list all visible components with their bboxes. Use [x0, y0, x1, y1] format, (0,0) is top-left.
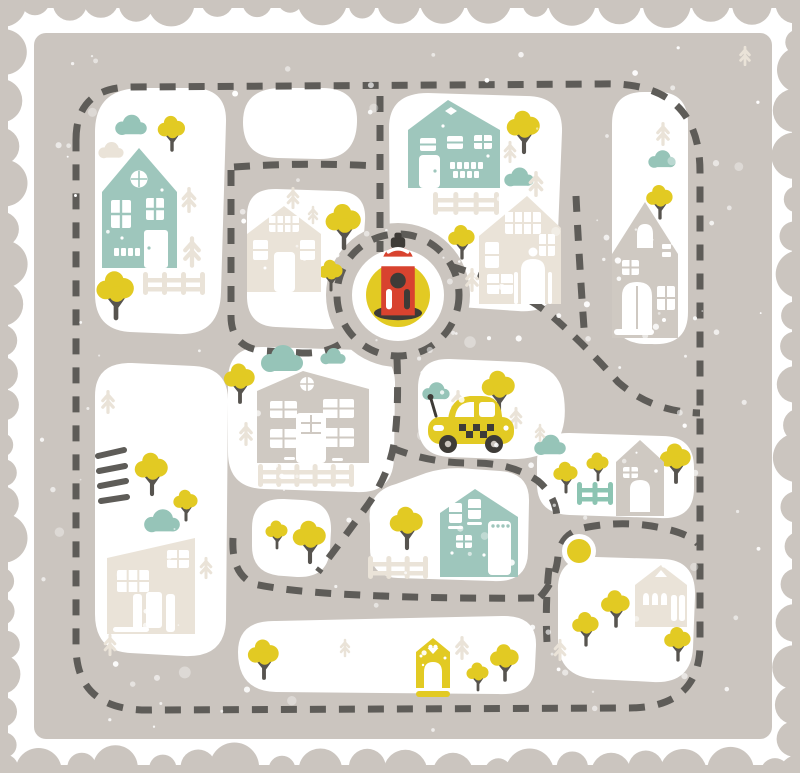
speckle — [681, 673, 687, 679]
speckle — [277, 413, 280, 416]
border-scallop — [779, 755, 800, 773]
speckle — [593, 666, 596, 669]
speckle — [713, 160, 719, 166]
speckle — [661, 562, 666, 567]
border-scallop — [643, 0, 691, 28]
speckle — [464, 336, 476, 348]
border-scallop — [598, 0, 642, 24]
border-scallop — [772, 645, 800, 689]
speckle — [683, 424, 687, 428]
speckle — [198, 349, 201, 352]
speckle — [615, 257, 621, 263]
speckle — [143, 623, 148, 628]
speckle — [637, 562, 641, 566]
speckle — [499, 284, 505, 290]
speckle — [481, 532, 489, 540]
speckle — [658, 312, 661, 315]
speckle — [527, 428, 530, 431]
speckle — [433, 570, 438, 575]
speckle — [212, 603, 215, 606]
speckle — [592, 706, 597, 711]
speckle — [531, 404, 536, 409]
speckle — [757, 547, 761, 551]
speckle — [442, 257, 444, 259]
speckle — [283, 489, 285, 491]
border-scallop — [780, 332, 800, 361]
border-scallop — [771, 133, 800, 179]
speckle — [756, 101, 759, 104]
speckle — [116, 570, 125, 579]
speckle — [497, 196, 502, 201]
speckle — [692, 470, 698, 476]
border-scallop — [67, 753, 96, 773]
speckle — [354, 292, 357, 295]
speckle — [108, 718, 111, 721]
speckle — [284, 111, 288, 115]
border-scallop — [0, 732, 17, 757]
speckle — [66, 143, 71, 148]
border-scallop — [384, 750, 428, 773]
speckle — [760, 312, 762, 314]
speckle — [197, 101, 200, 104]
speckle — [364, 231, 370, 237]
border-scallop — [0, 325, 17, 357]
speckle — [640, 502, 644, 506]
border-scallop — [628, 751, 663, 773]
speckle — [375, 339, 377, 341]
speckle — [596, 219, 598, 221]
speckle — [273, 463, 278, 468]
speckle — [618, 366, 621, 369]
speckle — [119, 161, 125, 167]
speckle — [86, 407, 89, 410]
speckle — [40, 438, 44, 442]
speckle — [677, 46, 680, 49]
speckle — [584, 563, 587, 566]
speckle — [605, 134, 609, 138]
speckle — [653, 324, 659, 330]
speckle — [180, 470, 182, 472]
border-scallop — [591, 753, 631, 773]
speckle — [275, 485, 277, 487]
speckle — [289, 252, 293, 256]
border-scallop — [269, 756, 296, 773]
border-scallop — [0, 433, 13, 458]
speckle — [255, 410, 261, 416]
speckle — [462, 451, 464, 453]
pond — [562, 534, 596, 568]
speckle — [487, 336, 491, 340]
border-scallop — [776, 250, 800, 298]
border-scallop — [775, 686, 800, 725]
border-scallop — [0, 567, 14, 594]
speckle — [504, 640, 507, 643]
border-scallop — [349, 749, 386, 773]
speckle — [516, 335, 522, 341]
border-scallop — [557, 752, 588, 773]
speckle — [302, 255, 308, 261]
speckle — [459, 397, 465, 403]
speckle — [385, 229, 388, 232]
speckle — [583, 516, 587, 520]
speckle — [153, 726, 155, 728]
speckle — [617, 277, 622, 282]
speckle — [304, 124, 308, 128]
speckle — [207, 624, 210, 627]
speckle — [693, 316, 697, 320]
speckle — [736, 510, 739, 513]
speckle — [241, 219, 246, 224]
speckle — [74, 194, 77, 197]
border-scallop — [0, 459, 17, 486]
border-scallop — [0, 128, 19, 165]
border-scallop — [349, 0, 375, 19]
speckle — [562, 670, 568, 676]
speckle — [677, 410, 683, 416]
speckle — [279, 474, 284, 479]
speckle — [551, 227, 560, 236]
speckle — [457, 526, 463, 532]
speckle — [67, 156, 69, 158]
speckle — [244, 687, 250, 693]
border-scallop — [773, 433, 800, 482]
speckle — [179, 666, 191, 678]
speckle — [232, 91, 238, 97]
speckle — [528, 462, 534, 468]
speckle — [427, 347, 433, 353]
speckle — [451, 331, 455, 335]
speckle — [474, 274, 477, 277]
speckle — [670, 85, 675, 90]
pond-water — [567, 539, 591, 563]
speckle — [91, 55, 93, 57]
speckle — [421, 650, 426, 655]
speckle — [733, 615, 738, 620]
border-scallop — [0, 357, 18, 391]
border-scallop — [776, 604, 800, 642]
speckle — [106, 230, 110, 234]
speckle — [509, 560, 515, 566]
speckle — [570, 495, 573, 498]
city-block — [243, 88, 357, 159]
speckle — [592, 691, 594, 693]
speckle — [144, 609, 149, 614]
speckle — [174, 528, 176, 530]
speckle — [41, 577, 45, 581]
speckle — [580, 649, 588, 657]
border-scallop — [0, 79, 22, 123]
border-scallop — [53, 0, 87, 21]
speckle — [440, 390, 444, 394]
speckle — [734, 162, 743, 171]
speckle — [652, 239, 654, 241]
speckle — [595, 438, 597, 440]
town-map — [0, 0, 800, 773]
speckle — [369, 104, 378, 113]
speckle — [391, 327, 394, 330]
border-scallop — [148, 0, 195, 26]
border-scallop — [93, 745, 138, 773]
speckle — [214, 162, 218, 166]
speckle — [325, 316, 327, 318]
speckle — [240, 209, 246, 215]
speckle — [272, 307, 274, 309]
border-scallop — [548, 0, 596, 26]
speckle — [642, 333, 648, 339]
border-scallop — [732, 0, 772, 25]
speckle — [368, 82, 374, 88]
border-scallop — [0, 160, 28, 207]
border-scallop — [777, 47, 800, 93]
speckle — [155, 481, 161, 487]
speckle — [88, 108, 97, 117]
border-scallop — [420, 0, 466, 24]
border-scallop — [0, 597, 15, 625]
speckle — [167, 555, 172, 560]
speckle — [585, 336, 591, 342]
border-scallop — [785, 532, 800, 561]
speckle — [468, 552, 472, 556]
speckle — [530, 625, 535, 630]
speckle — [701, 310, 703, 312]
border-scallop — [707, 747, 754, 773]
speckle — [378, 634, 384, 640]
border-scallop — [466, 0, 511, 24]
border-scallop — [523, 0, 548, 17]
speckle — [261, 150, 263, 152]
speckle — [159, 702, 162, 705]
speckle — [742, 400, 747, 405]
speckle — [604, 235, 610, 241]
border-scallop — [201, 0, 233, 17]
speckle — [130, 92, 135, 97]
speckle — [146, 507, 151, 512]
speckle — [296, 178, 300, 182]
border-scallop — [784, 186, 800, 212]
speckle — [154, 675, 160, 681]
border-scallop — [83, 0, 119, 18]
speckle — [709, 221, 714, 226]
speckle — [684, 355, 687, 358]
border-scallop — [0, 282, 23, 326]
border-scallop — [0, 0, 26, 27]
speckle — [417, 430, 428, 441]
gray-wide-house — [257, 371, 369, 463]
speckle — [346, 518, 351, 523]
border-scallop — [210, 743, 259, 773]
speckle — [93, 58, 98, 63]
border-scallop — [0, 240, 28, 288]
speckle — [314, 514, 317, 517]
speckle — [98, 355, 100, 357]
speckle — [71, 62, 74, 65]
play-mat-illustration — [0, 0, 800, 773]
border-scallop — [505, 749, 554, 773]
speckle — [458, 260, 461, 263]
speckle — [671, 243, 673, 245]
border-scallop — [0, 29, 27, 75]
speckle — [220, 710, 223, 713]
border-scallop — [777, 366, 800, 403]
speckle — [556, 313, 561, 318]
speckle — [455, 332, 458, 335]
speckle — [635, 452, 637, 454]
speckle — [667, 157, 676, 166]
border-scallop — [242, 0, 271, 17]
speckle — [546, 629, 552, 635]
speckle — [553, 504, 556, 507]
speckle — [665, 475, 668, 478]
speckle — [622, 459, 627, 464]
speckle — [285, 66, 291, 72]
speckle — [55, 527, 64, 536]
speckle — [632, 70, 638, 76]
speckle — [113, 661, 119, 667]
speckle — [295, 475, 299, 479]
speckle — [370, 328, 372, 330]
speckle — [404, 571, 407, 574]
border-scallop — [377, 0, 420, 24]
speckle — [447, 279, 453, 285]
speckle — [611, 667, 617, 673]
speckle — [633, 616, 639, 622]
speckle — [674, 122, 679, 127]
speckle — [602, 258, 605, 261]
speckle — [335, 253, 340, 258]
border-scallop — [433, 753, 473, 773]
border-scallop — [0, 654, 20, 694]
border-scallop — [781, 569, 800, 600]
speckle — [557, 667, 561, 671]
border-scallop — [777, 721, 800, 756]
speckle — [431, 53, 435, 57]
speckle — [431, 728, 435, 732]
border-scallop — [0, 389, 19, 420]
speckle — [393, 115, 399, 121]
border-scallop — [691, 0, 730, 22]
speckle — [690, 563, 698, 571]
speckle — [56, 142, 62, 148]
border-scallop — [781, 491, 800, 522]
speckle — [50, 487, 55, 492]
speckle — [494, 443, 499, 448]
speckle — [80, 479, 82, 481]
speckle — [536, 127, 538, 129]
speckle — [420, 371, 424, 375]
speckle — [374, 603, 379, 608]
speckle — [714, 329, 720, 335]
border-scallop — [780, 222, 800, 251]
speckle — [334, 585, 337, 588]
speckle — [638, 191, 644, 197]
speckle — [496, 670, 502, 676]
border-scallop — [149, 755, 176, 773]
speckle — [636, 500, 640, 504]
border-scallop — [776, 0, 800, 23]
speckle — [79, 321, 82, 324]
border-scallop — [0, 514, 28, 563]
border-scallop — [773, 89, 800, 132]
border-scallop — [0, 697, 17, 727]
speckle — [518, 52, 524, 58]
speckle — [552, 391, 554, 393]
border-scallop — [297, 0, 347, 25]
border-scallop — [15, 748, 61, 773]
border-scallop — [660, 749, 707, 773]
speckle — [287, 696, 296, 705]
speckle — [130, 681, 135, 686]
border-scallop — [781, 302, 800, 330]
speckle — [635, 228, 637, 230]
speckle — [551, 653, 554, 656]
speckle — [725, 687, 730, 692]
speckle — [584, 301, 590, 307]
speckle — [665, 118, 669, 122]
speckle — [680, 149, 682, 151]
speckle — [417, 357, 421, 361]
speckle — [178, 624, 180, 626]
border-scallop — [299, 749, 343, 773]
speckle — [727, 205, 732, 210]
speckle — [485, 78, 490, 83]
speckle — [296, 245, 299, 248]
